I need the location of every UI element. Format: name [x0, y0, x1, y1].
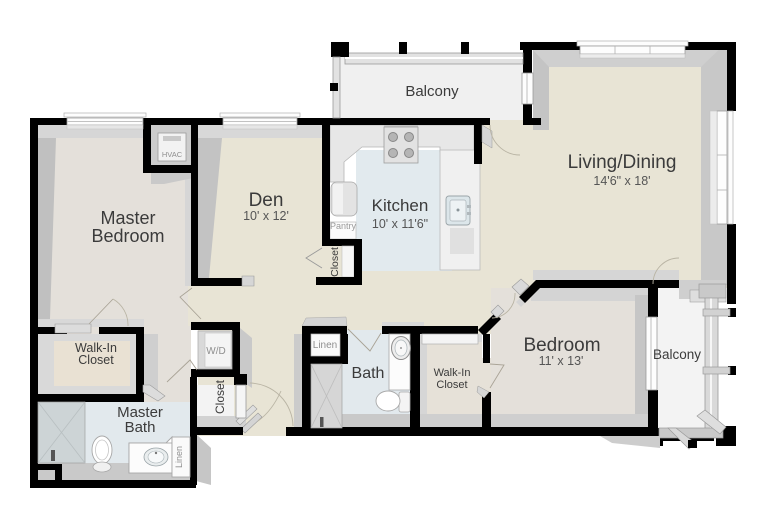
svg-text:Closet: Closet [78, 353, 114, 367]
svg-text:Living/Dining: Living/Dining [568, 152, 677, 173]
svg-text:Balcony: Balcony [653, 347, 701, 362]
svg-text:Master: Master [100, 208, 155, 228]
svg-text:W/D: W/D [206, 346, 225, 357]
svg-text:HVAC: HVAC [162, 150, 183, 159]
svg-text:Closet: Closet [213, 379, 227, 414]
svg-text:Linen: Linen [174, 446, 184, 468]
svg-text:Bath: Bath [352, 365, 385, 382]
svg-text:Closet: Closet [436, 379, 467, 391]
svg-text:10' x 12': 10' x 12' [243, 209, 289, 223]
svg-text:Den: Den [249, 190, 284, 211]
svg-text:Closet: Closet [329, 247, 341, 277]
svg-text:14'6" x 18': 14'6" x 18' [593, 174, 650, 188]
svg-text:Walk-In: Walk-In [434, 367, 471, 379]
svg-text:Pantry: Pantry [330, 221, 357, 231]
svg-text:Balcony: Balcony [405, 83, 459, 100]
svg-text:Linen: Linen [313, 340, 337, 351]
svg-text:Kitchen: Kitchen [372, 196, 429, 215]
svg-text:10' x 11'6": 10' x 11'6" [372, 217, 428, 231]
svg-text:Bedroom: Bedroom [91, 226, 164, 246]
svg-text:11' x 13': 11' x 13' [539, 354, 584, 368]
svg-text:Bedroom: Bedroom [523, 335, 600, 356]
svg-text:Bath: Bath [125, 419, 156, 436]
